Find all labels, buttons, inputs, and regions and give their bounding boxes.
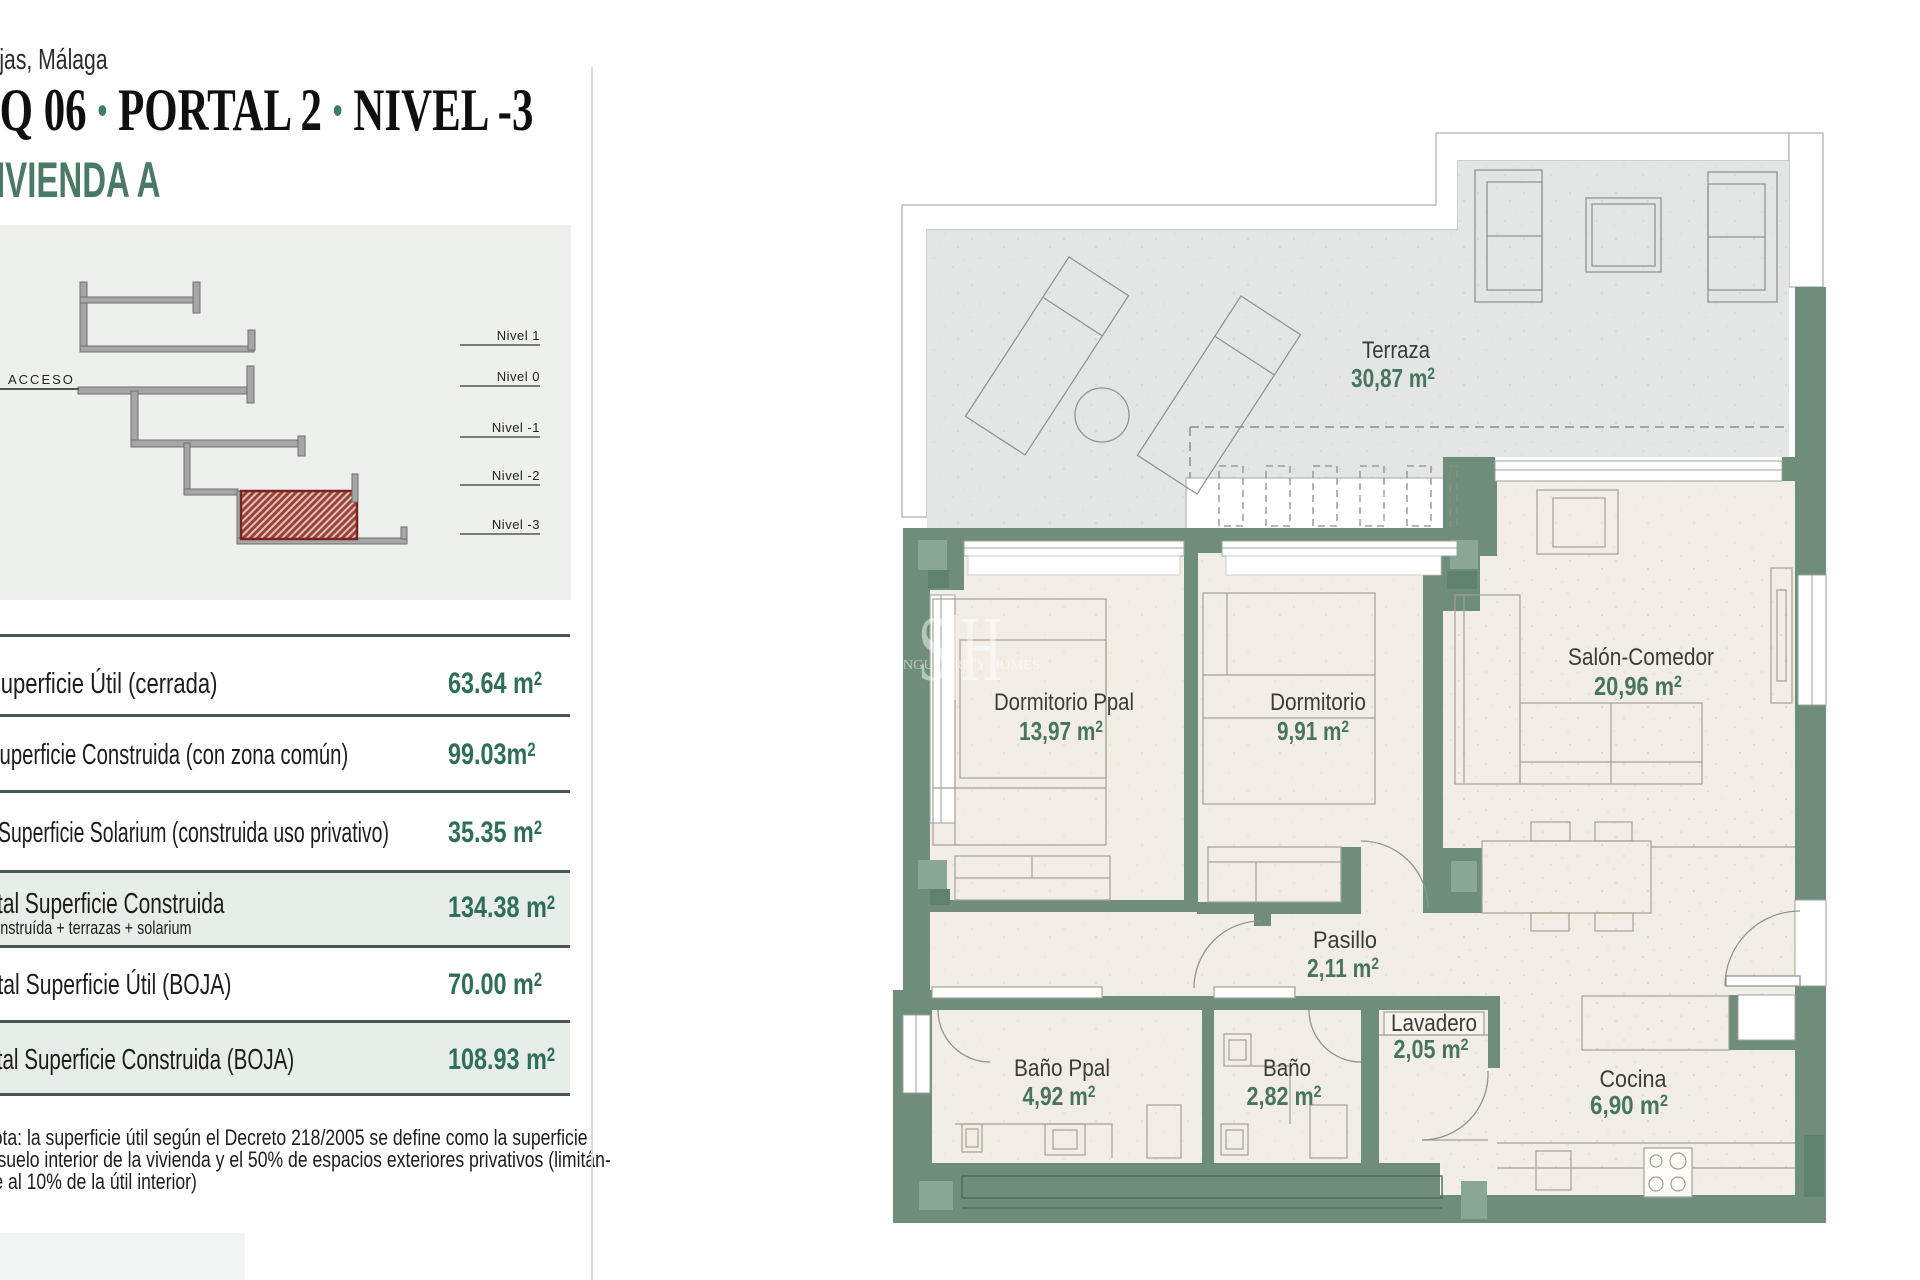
svg-text:2,11 m2: 2,11 m2: [1307, 953, 1379, 983]
svg-text:2,05 m2: 2,05 m2: [1394, 1034, 1469, 1064]
svg-text:Dormitorio Ppal: Dormitorio Ppal: [994, 689, 1134, 716]
svg-text:13,97 m2: 13,97 m2: [1019, 716, 1103, 746]
svg-text:Cocina: Cocina: [1600, 1066, 1668, 1093]
svg-text:S|H: S|H: [918, 598, 1002, 701]
svg-text:Baño Ppal: Baño Ppal: [1014, 1055, 1110, 1082]
svg-text:Pasillo: Pasillo: [1313, 927, 1377, 954]
svg-text:Dormitorio: Dormitorio: [1270, 689, 1366, 716]
svg-text:2,82 m2: 2,82 m2: [1247, 1081, 1322, 1111]
svg-text:20,96 m2: 20,96 m2: [1594, 671, 1682, 701]
svg-text:Lavadero: Lavadero: [1391, 1010, 1477, 1037]
svg-text:Baño: Baño: [1263, 1055, 1311, 1082]
svg-text:Salón-Comedor: Salón-Comedor: [1568, 644, 1714, 671]
svg-text:SINGULARITY HOMES: SINGULARITY HOMES: [890, 658, 1040, 673]
svg-text:4,92 m2: 4,92 m2: [1023, 1081, 1096, 1111]
svg-text:6,90 m2: 6,90 m2: [1590, 1090, 1668, 1120]
svg-text:Terraza: Terraza: [1362, 337, 1431, 364]
svg-text:30,87 m2: 30,87 m2: [1351, 363, 1435, 393]
svg-text:9,91 m2: 9,91 m2: [1277, 716, 1349, 746]
